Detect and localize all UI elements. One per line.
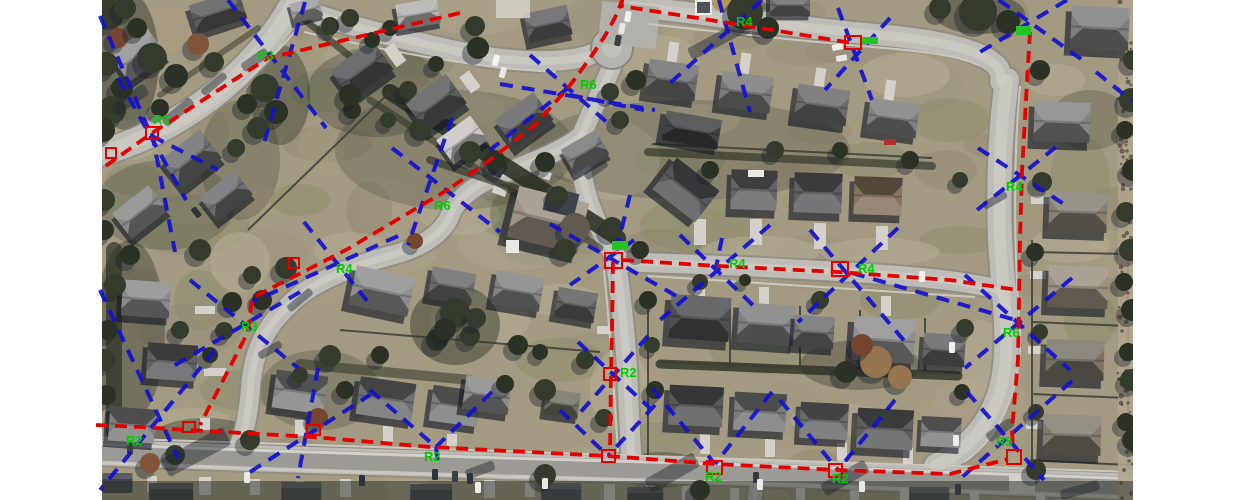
- svg-text:R3: R3: [153, 112, 170, 127]
- svg-text:R2: R2: [705, 469, 722, 484]
- svg-text:R6: R6: [580, 77, 597, 92]
- svg-text:R2: R2: [832, 471, 849, 486]
- svg-text:R4: R4: [729, 256, 746, 271]
- svg-text:R4: R4: [736, 14, 753, 29]
- svg-text:R6: R6: [434, 198, 451, 213]
- svg-text:R6: R6: [1003, 325, 1020, 340]
- svg-text:R4: R4: [336, 261, 353, 276]
- svg-text:R2: R2: [126, 433, 143, 448]
- svg-text:R4: R4: [858, 261, 875, 276]
- svg-text:R5: R5: [996, 434, 1013, 449]
- svg-text:R2: R2: [424, 449, 441, 464]
- svg-text:R3: R3: [257, 48, 274, 63]
- svg-text:R2: R2: [620, 365, 637, 380]
- svg-text:R4: R4: [1006, 179, 1023, 194]
- svg-text:R3: R3: [241, 319, 258, 334]
